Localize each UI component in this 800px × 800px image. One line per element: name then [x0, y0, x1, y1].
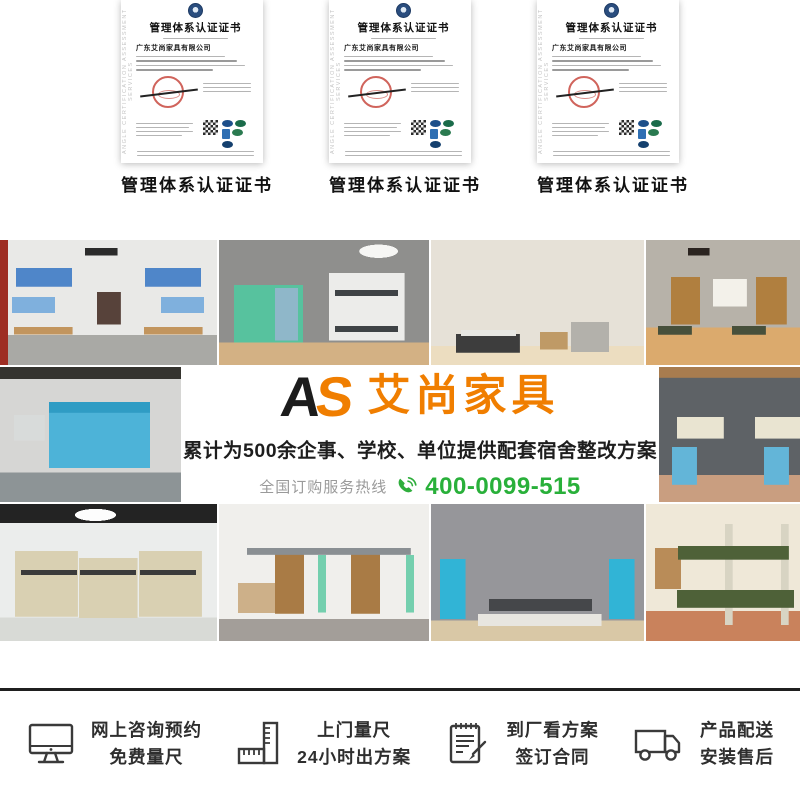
cert-text-line	[552, 127, 605, 128]
cert-text-line	[553, 155, 670, 156]
badge-icon	[222, 141, 233, 148]
certificates-section: ANGLE CERTIFICATION ASSESSMENT SERVICES …	[0, 0, 800, 240]
certificate-company-name: 广东艾尚家具有限公司	[344, 43, 463, 53]
badge-icon	[430, 141, 441, 148]
cert-marks	[619, 120, 671, 148]
cert-text-line	[619, 91, 667, 92]
qr-code-icon	[411, 120, 426, 135]
certification-emblem-icon	[188, 3, 203, 18]
cert-text-line	[552, 123, 609, 124]
certificate-2: ANGLE CERTIFICATION ASSESSMENT SERVICES …	[329, 0, 471, 196]
accreditation-badges	[430, 120, 463, 148]
hotline-number: 400-0099-515	[425, 473, 580, 501]
certificate-image: ANGLE CERTIFICATION ASSESSMENT SERVICES …	[537, 0, 679, 163]
certification-emblem-icon	[604, 3, 619, 18]
cert-text-line	[552, 131, 609, 132]
cert-text-line	[344, 65, 453, 66]
certificate-caption: 管理体系认证证书	[537, 171, 679, 196]
services-bar: 网上咨询预约 免费量尺 上门量尺 24小时出方案	[0, 691, 800, 796]
cert-date-lines	[409, 80, 461, 92]
photo-wardrobe-beds-room	[646, 240, 800, 365]
certificates-row: ANGLE CERTIFICATION ASSESSMENT SERVICES …	[0, 0, 800, 196]
badge-icon	[430, 129, 438, 139]
contract-icon	[445, 720, 491, 768]
badge-icon	[232, 129, 243, 136]
service-line2: 安装售后	[700, 744, 774, 770]
certificate-title: 管理体系认证证书	[136, 20, 255, 35]
photo-blue-bunk-desk-room	[0, 240, 217, 365]
service-text: 上门量尺 24小时出方案	[297, 717, 411, 770]
cert-text-line	[345, 155, 462, 156]
badge-icon	[443, 120, 454, 127]
cert-text-line	[203, 83, 251, 84]
cert-text-line	[619, 87, 667, 88]
phone-icon	[395, 476, 417, 498]
service-line2: 免费量尺	[91, 744, 202, 770]
cert-text-line	[411, 83, 459, 84]
service-item-onsite-measure: 上门量尺 24小时出方案	[236, 717, 411, 770]
cert-text-line	[136, 65, 245, 66]
certification-emblem-icon	[396, 3, 411, 18]
brand-logo: A S 艾尚家具	[281, 369, 560, 425]
brand-name: 艾尚家具	[367, 375, 559, 418]
cert-text-line	[552, 60, 653, 62]
dormitory-photo-collage: A S 艾尚家具 累计为500余企事、学校、单位提供配套宿舍整改方案 全国订购服…	[0, 240, 800, 641]
certificate-caption: 管理体系认证证书	[121, 171, 263, 196]
photo-green-metal-bunk-structure	[646, 504, 800, 641]
cert-text-line	[137, 155, 254, 156]
certificate-1: ANGLE CERTIFICATION ASSESSMENT SERVICES …	[121, 0, 263, 196]
cert-text-line	[553, 151, 670, 152]
cert-text-line	[344, 131, 401, 132]
badge-icon	[638, 129, 646, 139]
truck-icon	[633, 720, 685, 768]
certificate-image: ANGLE CERTIFICATION ASSESSMENT SERVICES …	[329, 0, 471, 163]
cert-text-line	[411, 87, 459, 88]
cert-text-line	[136, 69, 213, 71]
cert-text-line	[163, 38, 228, 39]
photo-single-bed-room	[431, 240, 644, 365]
product-detail-page: ANGLE CERTIFICATION ASSESSMENT SERVICES …	[0, 0, 800, 800]
cert-text-line	[552, 65, 661, 66]
badge-icon	[430, 120, 441, 127]
cert-text-line	[552, 69, 629, 71]
cert-text-line	[136, 123, 193, 124]
badge-icon	[222, 120, 233, 127]
certificate-3: ANGLE CERTIFICATION ASSESSMENT SERVICES …	[537, 0, 679, 196]
collage-row-1	[0, 240, 800, 365]
certificate-watermark-text: ANGLE CERTIFICATION ASSESSMENT SERVICES	[538, 6, 550, 156]
collage-row-3	[0, 504, 800, 641]
cert-text-line	[203, 87, 251, 88]
photo-loft-wardrobe-ladder-room	[219, 504, 429, 641]
brand-banner: A S 艾尚家具 累计为500余企事、学校、单位提供配套宿舍整改方案 全国订购服…	[183, 367, 657, 502]
cert-text-line	[344, 135, 390, 136]
certificate-watermark-text: ANGLE CERTIFICATION ASSESSMENT SERVICES	[122, 6, 134, 156]
cert-text-line	[344, 127, 397, 128]
monitor-icon	[26, 720, 76, 768]
service-line1: 上门量尺	[297, 717, 411, 743]
cert-text-line	[136, 60, 237, 62]
certificate-title: 管理体系认证证书	[344, 20, 463, 35]
photo-blue-study-carrels	[0, 367, 181, 502]
cert-text-line	[344, 123, 401, 124]
cert-text-line	[344, 69, 421, 71]
accreditation-badges	[638, 120, 671, 148]
banner-headline: 累计为500余企事、学校、单位提供配套宿舍整改方案	[183, 434, 657, 463]
photo-mint-lockers-room	[219, 240, 429, 365]
service-text: 产品配送 安装售后	[700, 717, 774, 770]
cert-text-line	[371, 38, 436, 39]
service-text: 到厂看方案 签订合同	[506, 717, 599, 770]
cert-footer	[344, 120, 463, 148]
cert-text-line	[344, 60, 445, 62]
cert-text-line	[136, 56, 225, 57]
accreditation-badges	[222, 120, 255, 148]
cert-issuer-lines	[344, 120, 406, 136]
cert-stamp-area	[552, 74, 671, 114]
hotline-row: 全国订购服务热线 400-0099-515	[259, 473, 580, 501]
badge-icon	[651, 120, 662, 127]
badge-icon	[638, 141, 649, 148]
photo-twin-beds-cyan-doors	[431, 504, 644, 641]
hotline-label: 全国订购服务热线	[259, 476, 387, 497]
cert-text-line	[344, 56, 433, 57]
cert-text-line	[579, 38, 644, 39]
cert-text-line	[203, 91, 251, 92]
certificate-company-name: 广东艾尚家具有限公司	[136, 43, 255, 53]
service-line1: 到厂看方案	[506, 717, 599, 743]
cert-text-line	[137, 151, 254, 152]
collage-row-2: A S 艾尚家具 累计为500余企事、学校、单位提供配套宿舍整改方案 全国订购服…	[0, 367, 800, 502]
certificate-title: 管理体系认证证书	[552, 20, 671, 35]
service-item-delivery: 产品配送 安装售后	[633, 717, 774, 770]
cert-footer	[552, 120, 671, 148]
qr-code-icon	[619, 120, 634, 135]
badge-icon	[638, 120, 649, 127]
cert-text-line	[552, 135, 598, 136]
ruler-icon	[236, 720, 282, 768]
badge-icon	[235, 120, 246, 127]
white-gap	[0, 641, 800, 688]
cert-date-lines	[617, 80, 669, 92]
cert-footer	[136, 120, 255, 148]
cert-marks	[411, 120, 463, 148]
service-line2: 24小时出方案	[297, 744, 411, 770]
cert-marks	[203, 120, 255, 148]
cert-text-line	[411, 91, 459, 92]
photo-cream-bunks-cloud-light	[0, 504, 217, 641]
badge-icon	[222, 129, 230, 139]
cert-text-line	[552, 56, 641, 57]
service-line1: 产品配送	[700, 717, 774, 743]
certificate-image: ANGLE CERTIFICATION ASSESSMENT SERVICES …	[121, 0, 263, 163]
cert-issuer-lines	[136, 120, 198, 136]
cert-text-line	[136, 135, 182, 136]
service-line1: 网上咨询预约	[91, 717, 202, 743]
certificate-caption: 管理体系认证证书	[329, 171, 471, 196]
badge-icon	[440, 129, 451, 136]
service-item-contract: 到厂看方案 签订合同	[445, 717, 599, 770]
cert-issuer-lines	[552, 120, 614, 136]
service-item-online-consult: 网上咨询预约 免费量尺	[26, 717, 202, 770]
cert-text-line	[136, 127, 189, 128]
qr-code-icon	[203, 120, 218, 135]
certificate-company-name: 广东艾尚家具有限公司	[552, 43, 671, 53]
service-line2: 签订合同	[506, 744, 599, 770]
cert-text-line	[345, 151, 462, 152]
cert-stamp-area	[136, 74, 255, 114]
photo-loft-beds-blue-desks	[659, 367, 800, 502]
service-text: 网上咨询预约 免费量尺	[91, 717, 202, 770]
cert-text-line	[136, 131, 193, 132]
badge-icon	[648, 129, 659, 136]
cert-date-lines	[201, 80, 253, 92]
cert-text-line	[619, 83, 667, 84]
cert-stamp-area	[344, 74, 463, 114]
logo-letter-s: S	[313, 369, 356, 425]
certificate-watermark-text: ANGLE CERTIFICATION ASSESSMENT SERVICES	[330, 6, 342, 156]
